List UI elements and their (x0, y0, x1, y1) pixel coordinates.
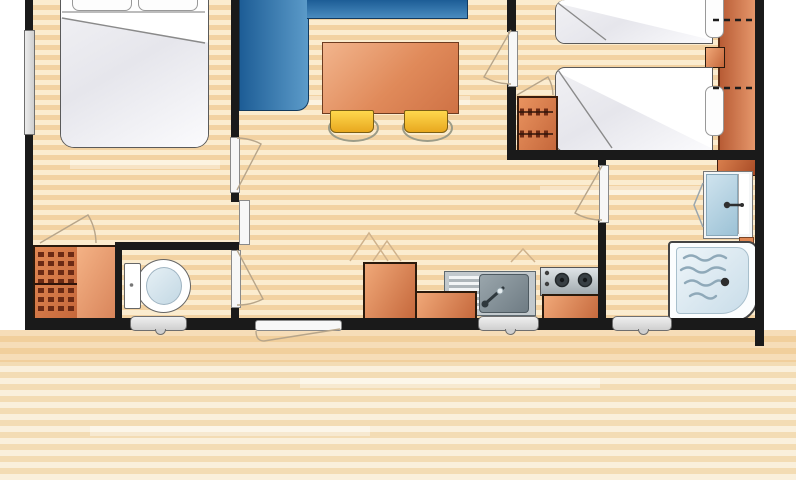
exterior-left (0, 0, 25, 332)
wall-right (755, 0, 764, 346)
bedroom-twin-door-leaf (508, 31, 518, 87)
twin-bed-bottom (555, 67, 713, 152)
plank-highlight (300, 378, 600, 388)
wardrobe-shelf-section (77, 245, 117, 325)
exterior-right (764, 0, 796, 330)
kitchen-window (478, 316, 539, 331)
dining-table (322, 42, 459, 114)
wall-bedroom-living-mid (231, 192, 239, 202)
sink-basin (479, 274, 529, 313)
hob-cooktop (540, 267, 600, 296)
bed-blanket-fold (61, 0, 208, 147)
wardrobe-hanging-section (33, 245, 81, 325)
bedroom-double-door-leaf (230, 137, 240, 193)
tall-cabinet-fridge (363, 262, 417, 325)
pillow (72, 0, 132, 11)
nightstand (705, 47, 725, 68)
floor-plan-canvas (0, 0, 796, 480)
shower-room-door-leaf (599, 165, 609, 223)
wall-twinroom-bottom (507, 150, 764, 160)
wall-twinroom-left-lower (507, 84, 516, 160)
toilet-cistern (124, 263, 141, 309)
terrace-edge-band (0, 330, 796, 362)
shower-tray-inner (676, 247, 749, 314)
double-bed (60, 0, 209, 148)
sliding-panel-leaf (239, 200, 250, 245)
wall-wc-top (115, 242, 239, 250)
pillow (705, 0, 724, 38)
bed-blanket-fold (556, 68, 712, 151)
wc-window (130, 316, 187, 331)
wall-twinroom-left-upper (507, 0, 516, 32)
twin-bed-top (555, 0, 713, 44)
wc-door-leaf (231, 250, 241, 308)
washbasin-side-panel (738, 174, 749, 234)
corner-sofa-back (307, 0, 468, 19)
toilet-bowl-inner (146, 267, 182, 305)
corner-sofa-chaise (239, 0, 309, 111)
left-wall-window (24, 30, 35, 135)
plank-highlight (90, 426, 370, 436)
pillow (138, 0, 198, 11)
stool (330, 110, 374, 133)
shower-room-window (612, 316, 672, 331)
stool (404, 110, 448, 133)
washbasin-bowl (706, 174, 738, 236)
wall-shower-left-lower (598, 219, 606, 320)
wall-bedroom-living-upper (231, 0, 239, 140)
entrance-door-threshold (255, 320, 342, 331)
dresser-with-hangers (517, 96, 558, 156)
wall-wc-left (115, 242, 122, 320)
bed-blanket-fold (556, 0, 712, 43)
pillow (705, 86, 724, 136)
